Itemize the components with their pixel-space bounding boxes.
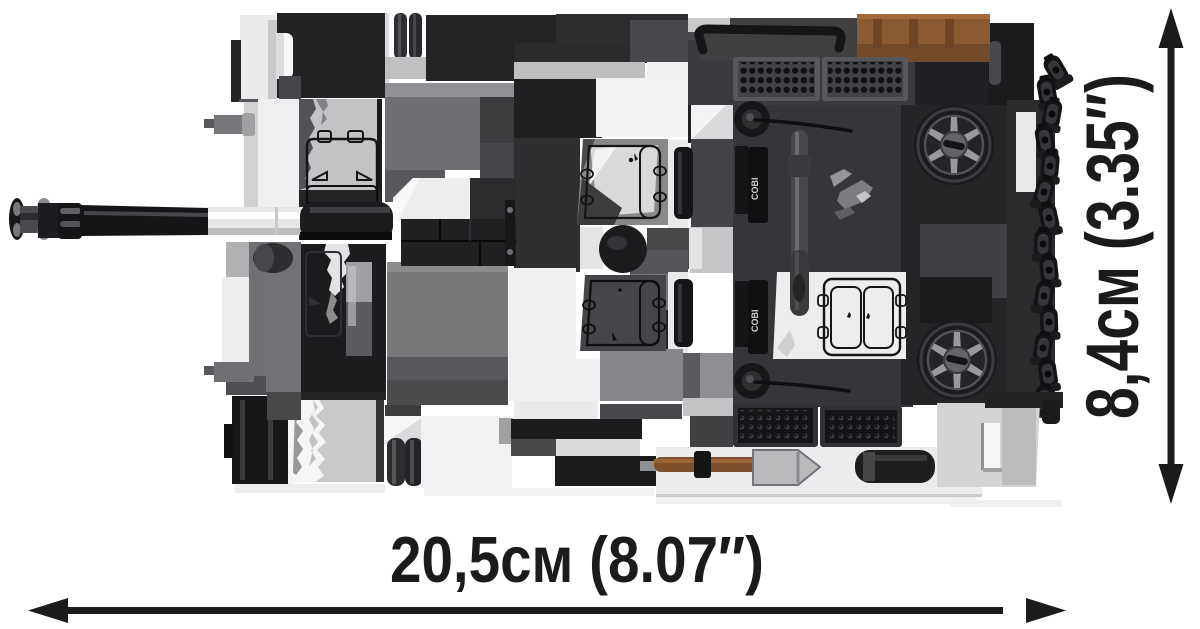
svg-text:20,5см (8.07″): 20,5см (8.07″)	[390, 523, 764, 596]
svg-text:COBI: COBI	[750, 310, 760, 333]
svg-text:COBI: COBI	[750, 178, 760, 201]
svg-text:8,4см (3.35″): 8,4см (3.35″)	[1071, 74, 1154, 419]
